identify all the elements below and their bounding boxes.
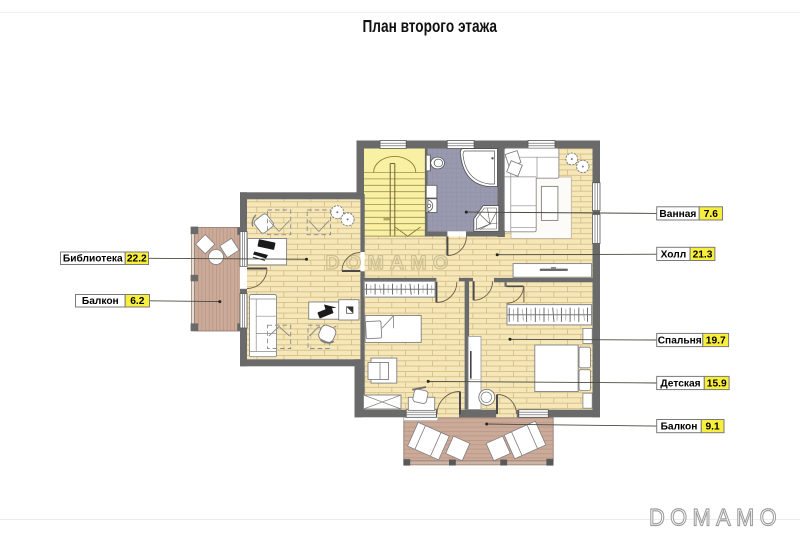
svg-text:6.2: 6.2 xyxy=(130,296,144,307)
svg-text:Холл: Холл xyxy=(661,250,687,261)
svg-text:9.1: 9.1 xyxy=(706,422,720,433)
svg-text:15.9: 15.9 xyxy=(707,379,727,390)
svg-text:21.3: 21.3 xyxy=(693,250,713,261)
svg-text:7.6: 7.6 xyxy=(704,209,718,220)
svg-text:DOMAMO: DOMAMO xyxy=(649,505,782,532)
svg-text:Библиотека: Библиотека xyxy=(63,253,123,265)
svg-text:Спальня: Спальня xyxy=(658,336,702,347)
svg-text:Детская: Детская xyxy=(660,379,700,390)
svg-text:Балкон: Балкон xyxy=(661,422,698,433)
svg-text:19.7: 19.7 xyxy=(706,336,726,347)
svg-text:Ванная: Ванная xyxy=(659,209,696,220)
svg-text:План второго этажа: План второго этажа xyxy=(363,16,498,36)
svg-text:Балкон: Балкон xyxy=(82,296,119,307)
svg-text:22.2: 22.2 xyxy=(127,254,147,265)
